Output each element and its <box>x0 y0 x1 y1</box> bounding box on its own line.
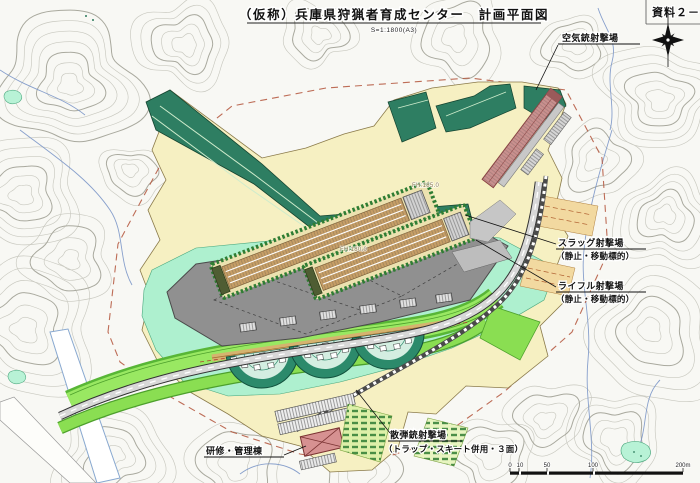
label-shotgun-range-sub: （トラップ・スキート併用・３面） <box>384 444 523 454</box>
doc-ref: 資料２－２ <box>652 5 700 19</box>
label-air-rifle-range: 空気銃射撃場 <box>562 32 618 43</box>
scale-note: S=1:1800(A3) <box>371 27 417 34</box>
label-elevation-lower: FH:180.0 <box>340 247 367 253</box>
screenshot-root: 空気銃射撃場 スラッグ射撃場 （静止・移動標的） ライフル射撃場 （静止・移動標… <box>0 0 700 483</box>
label-slug-range-sub: （静止・移動標的） <box>556 251 634 261</box>
page-title: （仮称）兵庫県狩猟者育成センター 計画平面図 <box>239 7 549 22</box>
label-slug-range: スラッグ射撃場 <box>558 237 624 248</box>
label-rifle-range-sub: （静止・移動標的） <box>556 294 634 304</box>
label-rifle-range: ライフル射撃場 <box>558 280 624 291</box>
label-shotgun-range: 散弾銃射撃場 <box>390 429 446 440</box>
site-plan-map: 空気銃射撃場 スラッグ射撃場 （静止・移動標的） ライフル射撃場 （静止・移動標… <box>0 0 700 483</box>
label-admin-building: 研修・管理棟 <box>206 445 263 456</box>
label-elevation-upper: FH:185.0 <box>412 183 439 189</box>
scalebar-10: 10 <box>517 463 524 469</box>
